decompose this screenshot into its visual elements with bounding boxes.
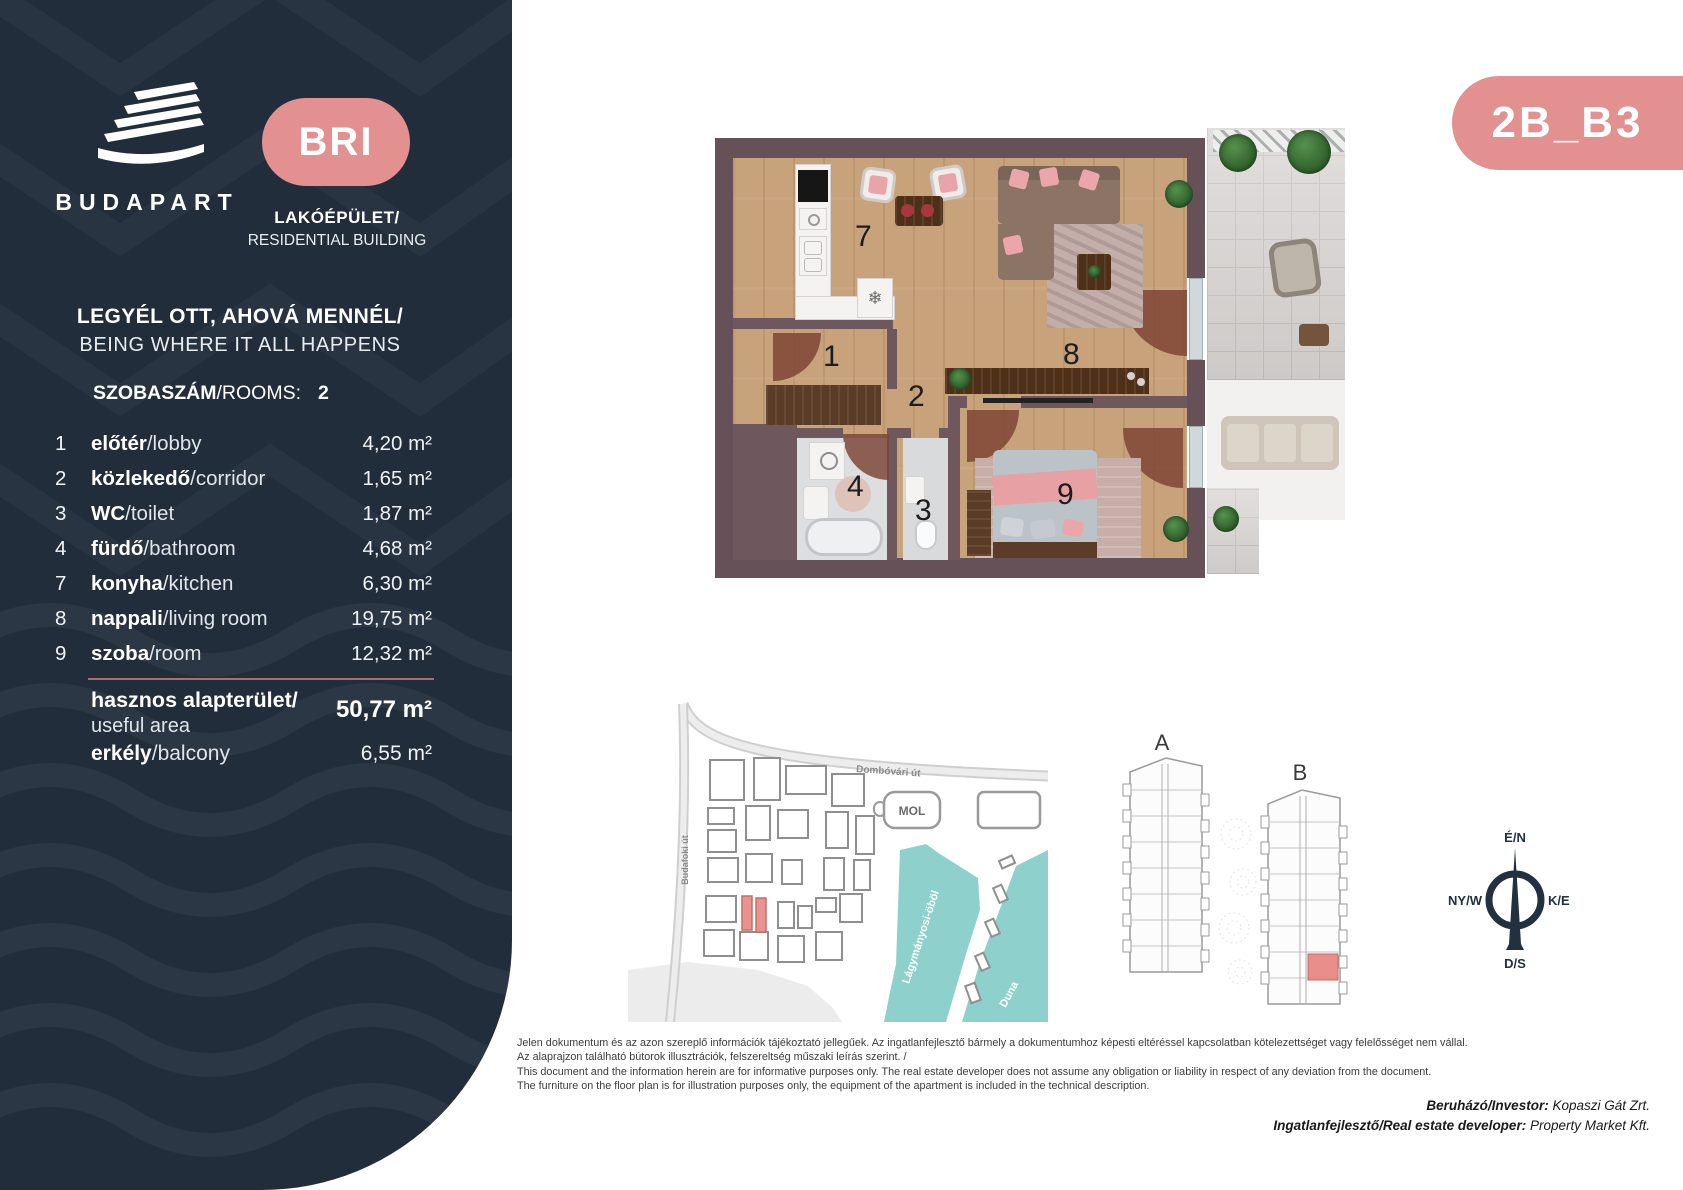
balcony-door-glass [1189, 426, 1203, 488]
building-floorplates: A B [1040, 664, 1370, 1024]
brochure-page: BUDAPART BRI LAKÓÉPÜLET/ RESIDENTIAL BUI… [0, 0, 1683, 1190]
plan-room-number-living: 8 [1063, 338, 1080, 372]
building-badge-label: BRI [299, 120, 374, 165]
wardrobe [766, 385, 881, 425]
plant [1219, 134, 1257, 172]
map-road-left-label: Budafoki út [680, 835, 690, 885]
bed-bench [993, 542, 1097, 558]
table-row: 9 szoba/room 12,32 m² [0, 642, 470, 677]
wall [939, 428, 948, 438]
unit-code-label: 2B_B3 [1492, 98, 1644, 148]
building-a-plan: A [1123, 730, 1209, 972]
apartment-floor-plan: ❄ [715, 128, 1347, 590]
developer-line: Ingatlanfejlesztő/Real estate developer:… [1150, 1116, 1650, 1136]
tagline-hu: LEGYÉL OTT, AHOVÁ MENNÉL/ [20, 305, 460, 329]
tagline-en: BEING WHERE IT ALL HAPPENS [20, 334, 460, 357]
wall [897, 428, 911, 438]
kitchen-sink [799, 236, 827, 276]
wall [887, 329, 897, 389]
terrace-door-glass [1189, 278, 1203, 360]
table-row: 4 fürdő/bathroom 4,68 m² [0, 537, 470, 572]
table-row: 8 nappali/living room 19,75 m² [0, 607, 470, 642]
dining-chair [859, 166, 897, 204]
plant [949, 368, 971, 390]
snowflake-icon: ❄ [867, 288, 882, 309]
wall [948, 396, 960, 560]
useful-area-value: 50,77 m² [336, 696, 432, 724]
building-type: LAKÓÉPÜLET/ RESIDENTIAL BUILDING [222, 208, 452, 250]
sidebar-panel: BUDAPART BRI LAKÓÉPÜLET/ RESIDENTIAL BUI… [0, 0, 512, 1190]
disclaimer-line: This document and the information herein… [517, 1065, 1472, 1079]
bedroom-wardrobe [967, 490, 991, 556]
bedroom-balcony-tiles [1207, 488, 1259, 574]
sofa [998, 166, 1120, 224]
compass-needle [1506, 848, 1524, 950]
tagline: LEGYÉL OTT, AHOVÁ MENNÉL/ BEING WHERE IT… [20, 305, 460, 357]
pillow [1039, 167, 1060, 188]
map-station-label: MOL [899, 804, 926, 818]
rooms-label-en: /ROOMS: [217, 382, 302, 404]
rooms-count-row: SZOBASZÁM/ROOMS: 2 [0, 382, 470, 408]
brand-name: BUDAPART [52, 189, 242, 216]
wall [795, 428, 843, 438]
dining-table [895, 196, 943, 226]
compass-rose: É/N NY/W K/E D/S [1440, 828, 1590, 978]
building-type-hu: LAKÓÉPÜLET/ [222, 208, 452, 228]
wall [715, 138, 1205, 158]
decor-cups [1137, 378, 1145, 386]
wall [1187, 138, 1205, 278]
unit-code-badge: 2B_B3 [1452, 76, 1683, 170]
plan-room-number-lobby: 1 [823, 340, 840, 374]
disclaimer-line: Az alaprajzon található bútorok illusztr… [517, 1050, 1472, 1064]
table-row: 7 konyha/kitchen 6,30 m² [0, 572, 470, 607]
tv [983, 398, 1093, 403]
bathroom-sink [803, 486, 829, 520]
plant [1163, 516, 1189, 542]
rooms-count-value: 2 [318, 382, 329, 405]
building-b-highlighted-unit [1308, 954, 1338, 980]
pillow [1002, 234, 1023, 255]
bed [993, 450, 1097, 546]
cooktop [798, 170, 828, 202]
building-b-label: B [1293, 760, 1308, 785]
location-map: MOL Dombóvári út Budafoki út Lágymányosi… [628, 664, 1048, 1022]
decor-cups [1127, 372, 1135, 380]
fridge: ❄ [857, 278, 893, 318]
plan-room-number-wc: 3 [915, 494, 932, 528]
table-row: 2 közlekedő/corridor 1,65 m² [0, 467, 470, 502]
compass-south-label: D/S [1504, 956, 1526, 971]
rooms-label-hu: SZOBASZÁM [93, 382, 217, 404]
disclaimer-line: Jelen dokumentum és az azon szereplő inf… [517, 1036, 1472, 1050]
bed-throw [992, 468, 1098, 505]
plant [1165, 180, 1193, 208]
lounge-chair [1267, 237, 1322, 299]
bathtub [805, 518, 883, 556]
developer-value: Property Market Kft. [1526, 1118, 1650, 1133]
bed-pillow [1000, 517, 1024, 538]
wall [1187, 360, 1205, 426]
investor-label: Beruházó/Investor: [1426, 1098, 1548, 1113]
wall [715, 138, 733, 578]
washing-machine [809, 442, 845, 480]
disclaimer-line: The furniture on the floor plan is for i… [517, 1079, 1472, 1093]
wave-motif [1219, 819, 1256, 984]
plan-room-number-bathroom: 4 [847, 470, 864, 504]
budapart-logo-icon [88, 82, 206, 174]
wall [960, 396, 967, 408]
investor-value: Kopaszi Gát Zrt. [1549, 1098, 1650, 1113]
plant [1287, 130, 1331, 174]
building-b-plan: B [1261, 760, 1347, 1004]
compass-west-label: NY/W [1448, 893, 1483, 908]
bed-pillow [1062, 518, 1084, 537]
sofa-chaise [998, 224, 1054, 280]
compass-north-label: É/N [1504, 830, 1526, 845]
plan-room-number-bedroom: 9 [1057, 478, 1074, 512]
brand-logo: BUDAPART [52, 82, 242, 216]
plan-room-number-corridor: 2 [908, 380, 925, 414]
wall-shaft [733, 424, 797, 560]
building-badge: BRI [262, 98, 410, 186]
oven [799, 208, 827, 230]
pillow [1008, 168, 1030, 190]
outdoor-sofa [1221, 416, 1339, 470]
developer-label: Ingatlanfejlesztő/Real estate developer: [1273, 1118, 1526, 1133]
side-table [1299, 324, 1329, 346]
credits: Beruházó/Investor: Kopaszi Gát Zrt. Inga… [1150, 1096, 1650, 1137]
bed-pillow [1030, 519, 1056, 539]
wall [715, 558, 1205, 578]
table-row: 1 előtér/lobby 4,20 m² [0, 432, 470, 467]
building-a-label: A [1155, 730, 1170, 755]
plant [1213, 506, 1239, 532]
tv-console [945, 368, 1149, 394]
investor-line: Beruházó/Investor: Kopaszi Gát Zrt. [1150, 1096, 1650, 1116]
table-row: 3 WC/toilet 1,87 m² [0, 502, 470, 537]
balcony-value: 6,55 m² [361, 742, 432, 766]
building-type-en: RESIDENTIAL BUILDING [222, 232, 452, 250]
balcony-row: erkély/balcony 6,55 m² [0, 742, 470, 772]
totals-divider [88, 678, 434, 680]
plan-room-number-kitchen: 7 [855, 220, 872, 254]
compass-east-label: K/E [1548, 893, 1570, 908]
coffee-table [1077, 254, 1111, 290]
wall [1187, 488, 1205, 578]
disclaimer-text: Jelen dokumentum és az azon szereplő inf… [517, 1036, 1472, 1093]
